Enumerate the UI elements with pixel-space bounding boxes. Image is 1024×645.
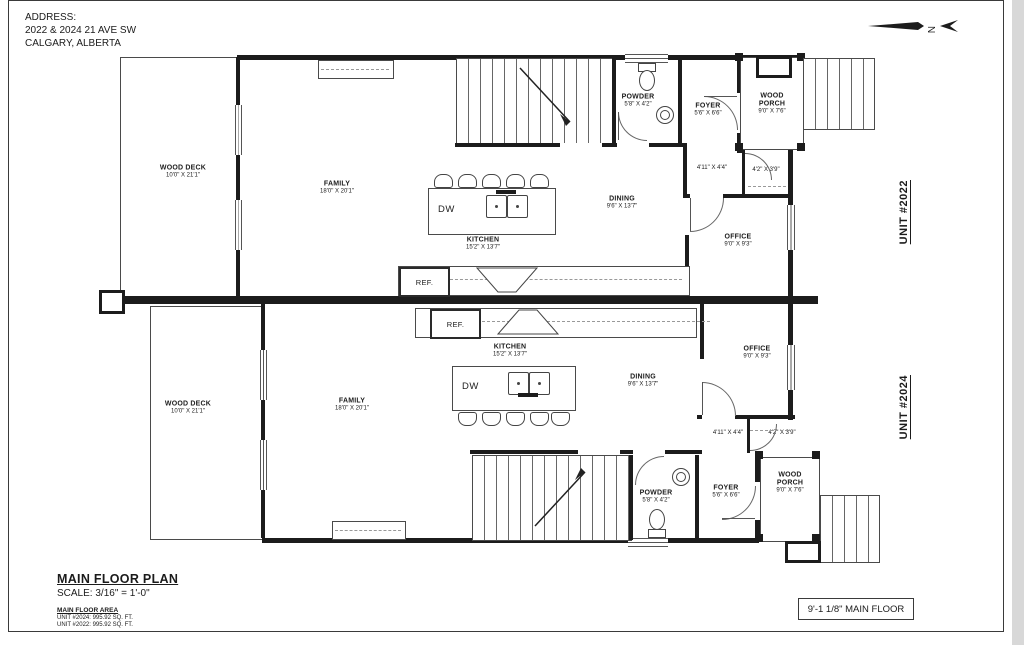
wall-segment [678,57,682,145]
hall-dims-bottom: 4'11" X 4'4" [713,430,743,436]
wall-segment [612,57,616,145]
room-label-family-bottom: FAMILY 18'0" X 20'1" [335,398,369,413]
party-wall [105,296,818,304]
bar-stool [434,174,453,188]
wall-segment [683,143,687,198]
window [628,538,668,547]
room-label-kitchen-bottom: KITCHEN 15'2" X 13'7" [493,344,527,359]
bar-stool [458,174,477,188]
wall-segment [261,304,265,538]
room-label-wood-porch-top: WOOD PORCH 9'0" X 7'6" [749,93,795,116]
wall-segment [695,455,699,540]
toilet-tank [648,529,666,538]
bar-stool [530,174,549,188]
wood-deck-bottom [150,306,264,540]
door-leaf [690,198,691,231]
dishwasher-label-bottom: DW [462,381,479,392]
room-label-wood-deck-bottom: WOOD DECK 10'0" X 21'1" [165,401,211,416]
exterior-stairs-top [803,58,875,130]
room-label-powder-top: POWDER 5'8" X 4'2" [622,94,655,109]
closet-rod-line [748,186,786,188]
door-opening [633,450,665,454]
north-arrow-icon: N [866,12,966,38]
address-label: ADDRESS: [25,11,136,24]
screen-edge-strip [1012,0,1024,645]
door-leaf [722,518,755,519]
step-pad [756,56,792,78]
area-unit-2022: UNIT #2022: 995.92 SQ. FT. [57,622,178,628]
plan-title: MAIN FLOOR PLAN [57,572,178,586]
title-block: MAIN FLOOR PLAN SCALE: 3/16" = 1'-0" MAI… [57,572,178,628]
address-line2: CALGARY, ALBERTA [25,37,136,50]
room-label-powder-bottom: POWDER 5'8" X 4'2" [640,490,673,505]
wood-porch-bottom [760,457,820,542]
window [787,345,795,390]
bay-window-top [318,60,394,79]
stair-direction-arrow [505,458,615,536]
window [787,205,795,250]
wall-segment [700,304,704,359]
sink-faucet [518,393,538,397]
dishwasher-label-top: DW [438,204,455,215]
hall-dims-top: 4'11" X 4'4" [697,165,727,171]
room-label-family-top: FAMILY 18'0" X 20'1" [320,181,354,196]
door-opening [617,143,649,147]
unit-label-2022: UNIT #2022 [898,180,910,244]
room-label-wood-porch-bottom: WOOD PORCH 9'0" X 7'6" [767,472,813,495]
window [260,350,267,400]
room-label-dining-top: DINING 9'6" X 13'7" [607,196,638,211]
toilet-bowl [639,70,655,91]
room-label-office-top: OFFICE 9'0" X 9'3" [724,234,751,249]
fridge-top: REF. [399,267,450,297]
porch-post [755,534,763,542]
kitchen-sink-basin [529,372,550,395]
bar-stool [506,174,525,188]
window [235,200,242,250]
door-leaf [618,112,619,140]
room-label-kitchen-top: KITCHEN 15'2" X 13'7" [466,237,500,252]
window-sill-line [335,530,401,532]
porch-post [812,451,820,459]
kitchen-sink-basin [508,372,529,395]
window [235,105,242,155]
plan-scale: SCALE: 3/16" = 1'-0" [57,588,178,599]
room-label-foyer-top: FOYER 5'6" X 6'6" [694,103,721,118]
area-unit-2024: UNIT #2024: 995.92 SQ. FT. [57,615,178,621]
room-label-wood-deck-top: WOOD DECK 10'0" X 21'1" [160,165,206,180]
fridge-bottom: REF. [430,309,481,339]
room-label-dining-bottom: DINING 9'6" X 13'7" [628,374,659,389]
range-hood-top [476,267,538,293]
toilet-bowl [649,509,665,530]
room-label-office-bottom: OFFICE 9'0" X 9'3" [743,346,770,361]
wall-segment [236,57,240,297]
stair-direction-arrow [490,60,600,140]
window [625,54,668,63]
party-wall-pier [99,290,125,314]
bar-stool [458,412,477,426]
exterior-stairs-bottom [820,495,880,563]
step-pad [785,541,821,563]
wall-segment [629,455,633,540]
range-hood-bottom [497,309,559,335]
address-block: ADDRESS: 2022 & 2024 21 AVE SW CALGARY, … [25,11,136,50]
area-heading: MAIN FLOOR AREA [57,607,178,614]
address-line1: 2022 & 2024 21 AVE SW [25,24,136,37]
porch-post [755,451,763,459]
bar-stool [530,412,549,426]
kitchen-sink-basin [507,195,528,218]
powder-sink-basin [676,472,686,482]
svg-text:N: N [925,26,936,33]
door-leaf [704,96,737,97]
porch-post [735,53,743,61]
kitchen-sink-basin [486,195,507,218]
bar-stool [482,174,501,188]
door-leaf [702,382,703,415]
floor-height-box: 9'-1 1/8" MAIN FLOOR [798,598,914,620]
bay-window-bottom [332,521,406,540]
window [260,440,267,490]
window-sill-line [321,69,389,71]
sink-faucet [496,190,516,194]
powder-sink-basin [660,110,670,120]
opening [560,143,602,147]
unit-label-2024: UNIT #2024 [898,375,910,439]
bar-stool [506,412,525,426]
closet-rod-line [750,430,788,432]
bar-stool [482,412,501,426]
opening [578,450,620,454]
bar-stool [551,412,570,426]
porch-post [797,143,805,151]
